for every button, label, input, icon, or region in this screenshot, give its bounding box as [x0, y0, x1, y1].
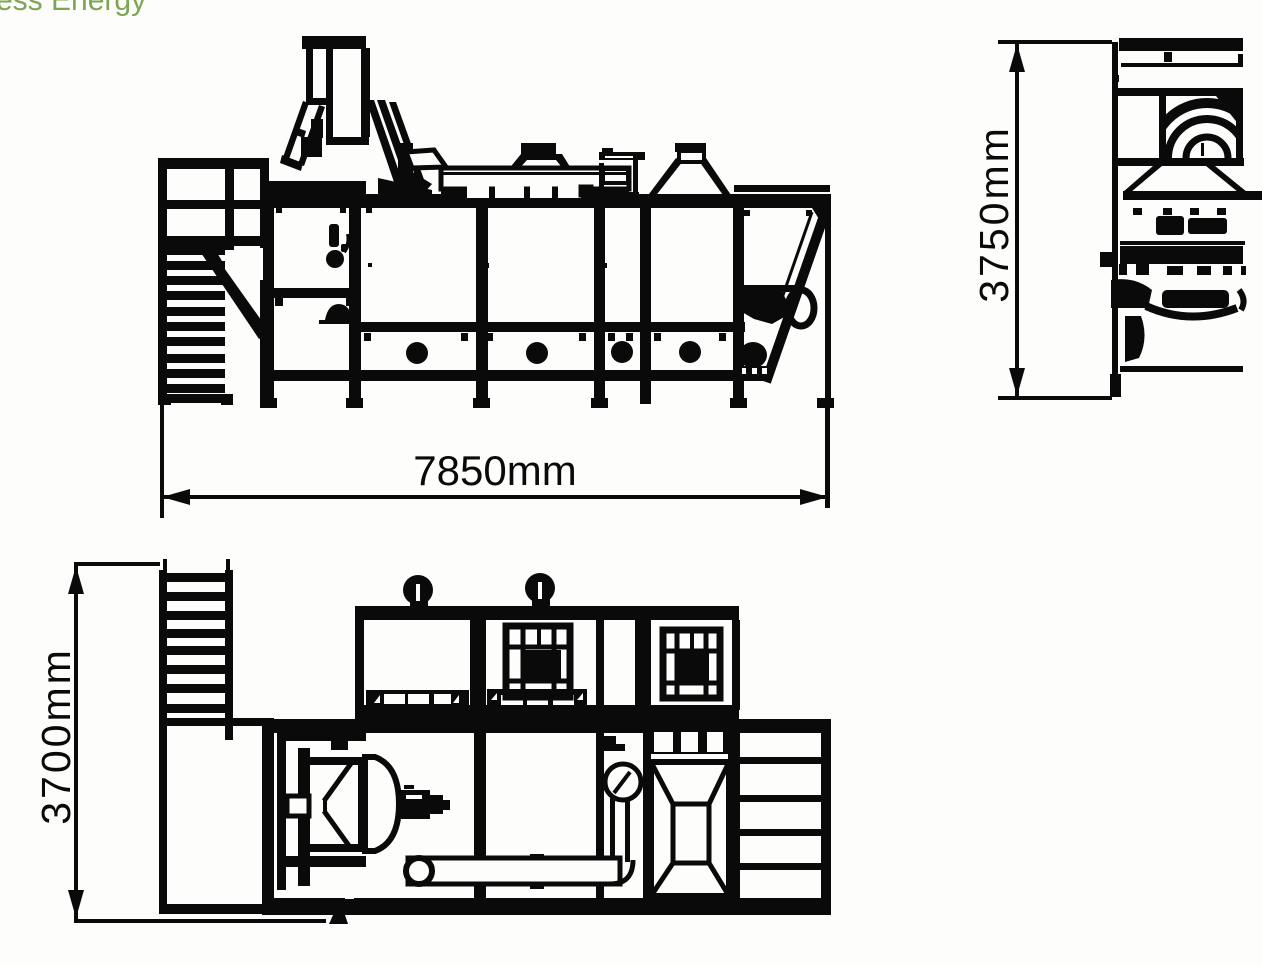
- svg-text:3700mm: 3700mm: [33, 647, 79, 825]
- svg-text:7850mm: 7850mm: [413, 447, 576, 494]
- svg-text:3750mm: 3750mm: [971, 125, 1017, 303]
- svg-text:ess Energy: ess Energy: [0, 0, 146, 17]
